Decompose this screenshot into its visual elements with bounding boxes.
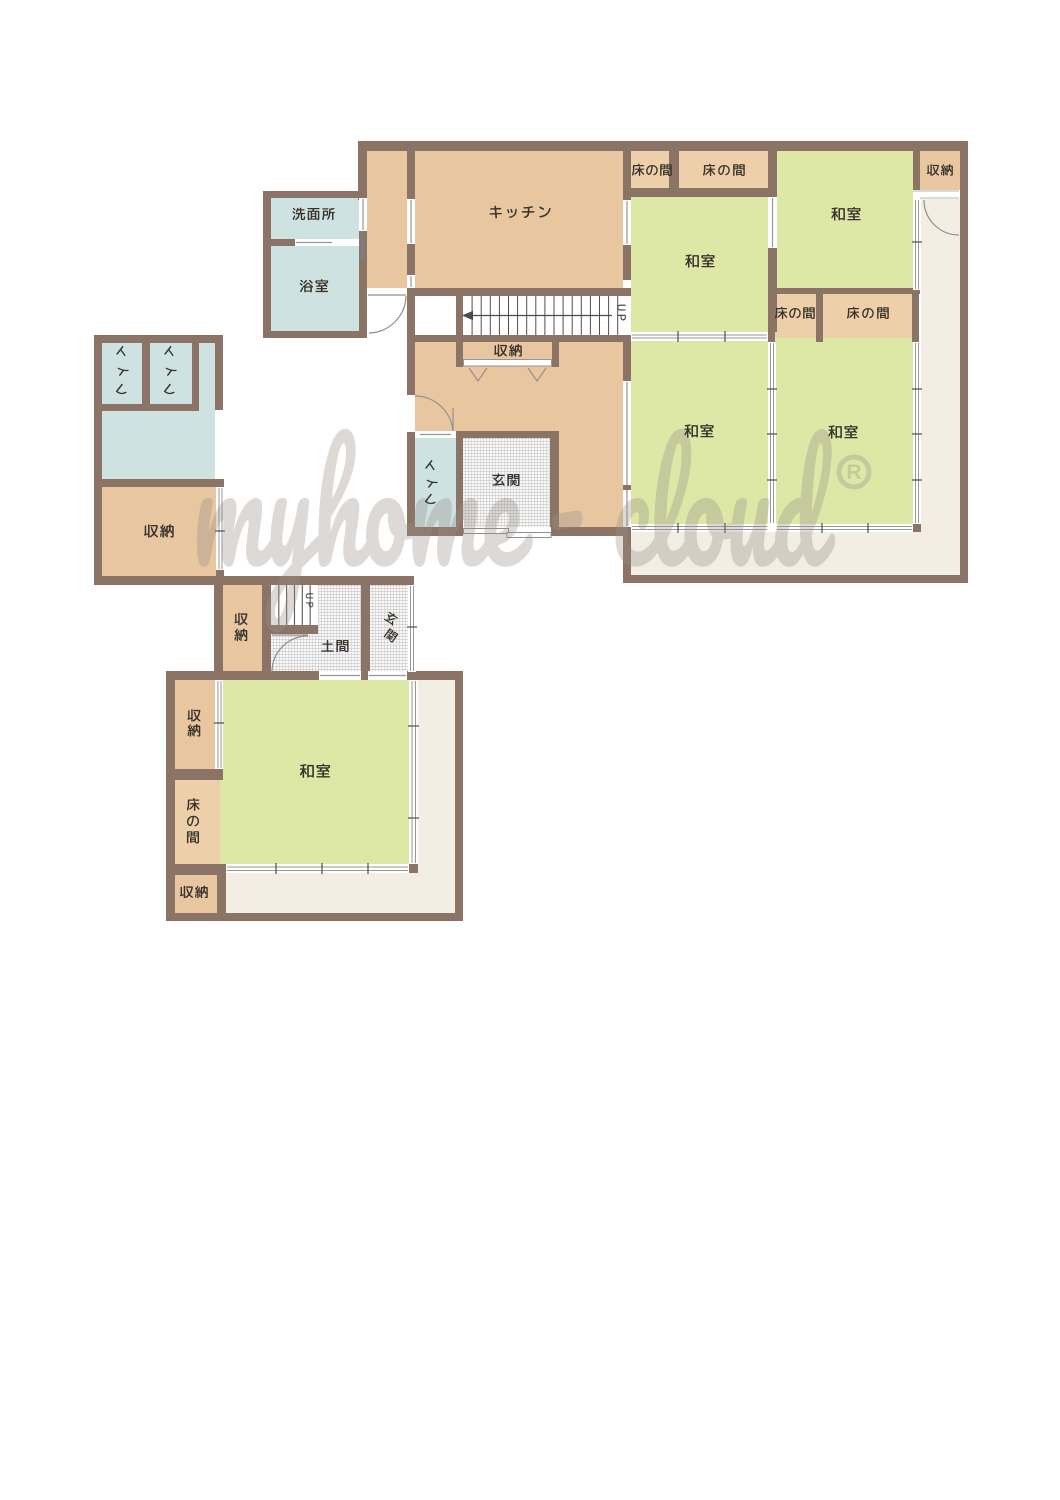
svg-text:R: R [846,461,861,484]
